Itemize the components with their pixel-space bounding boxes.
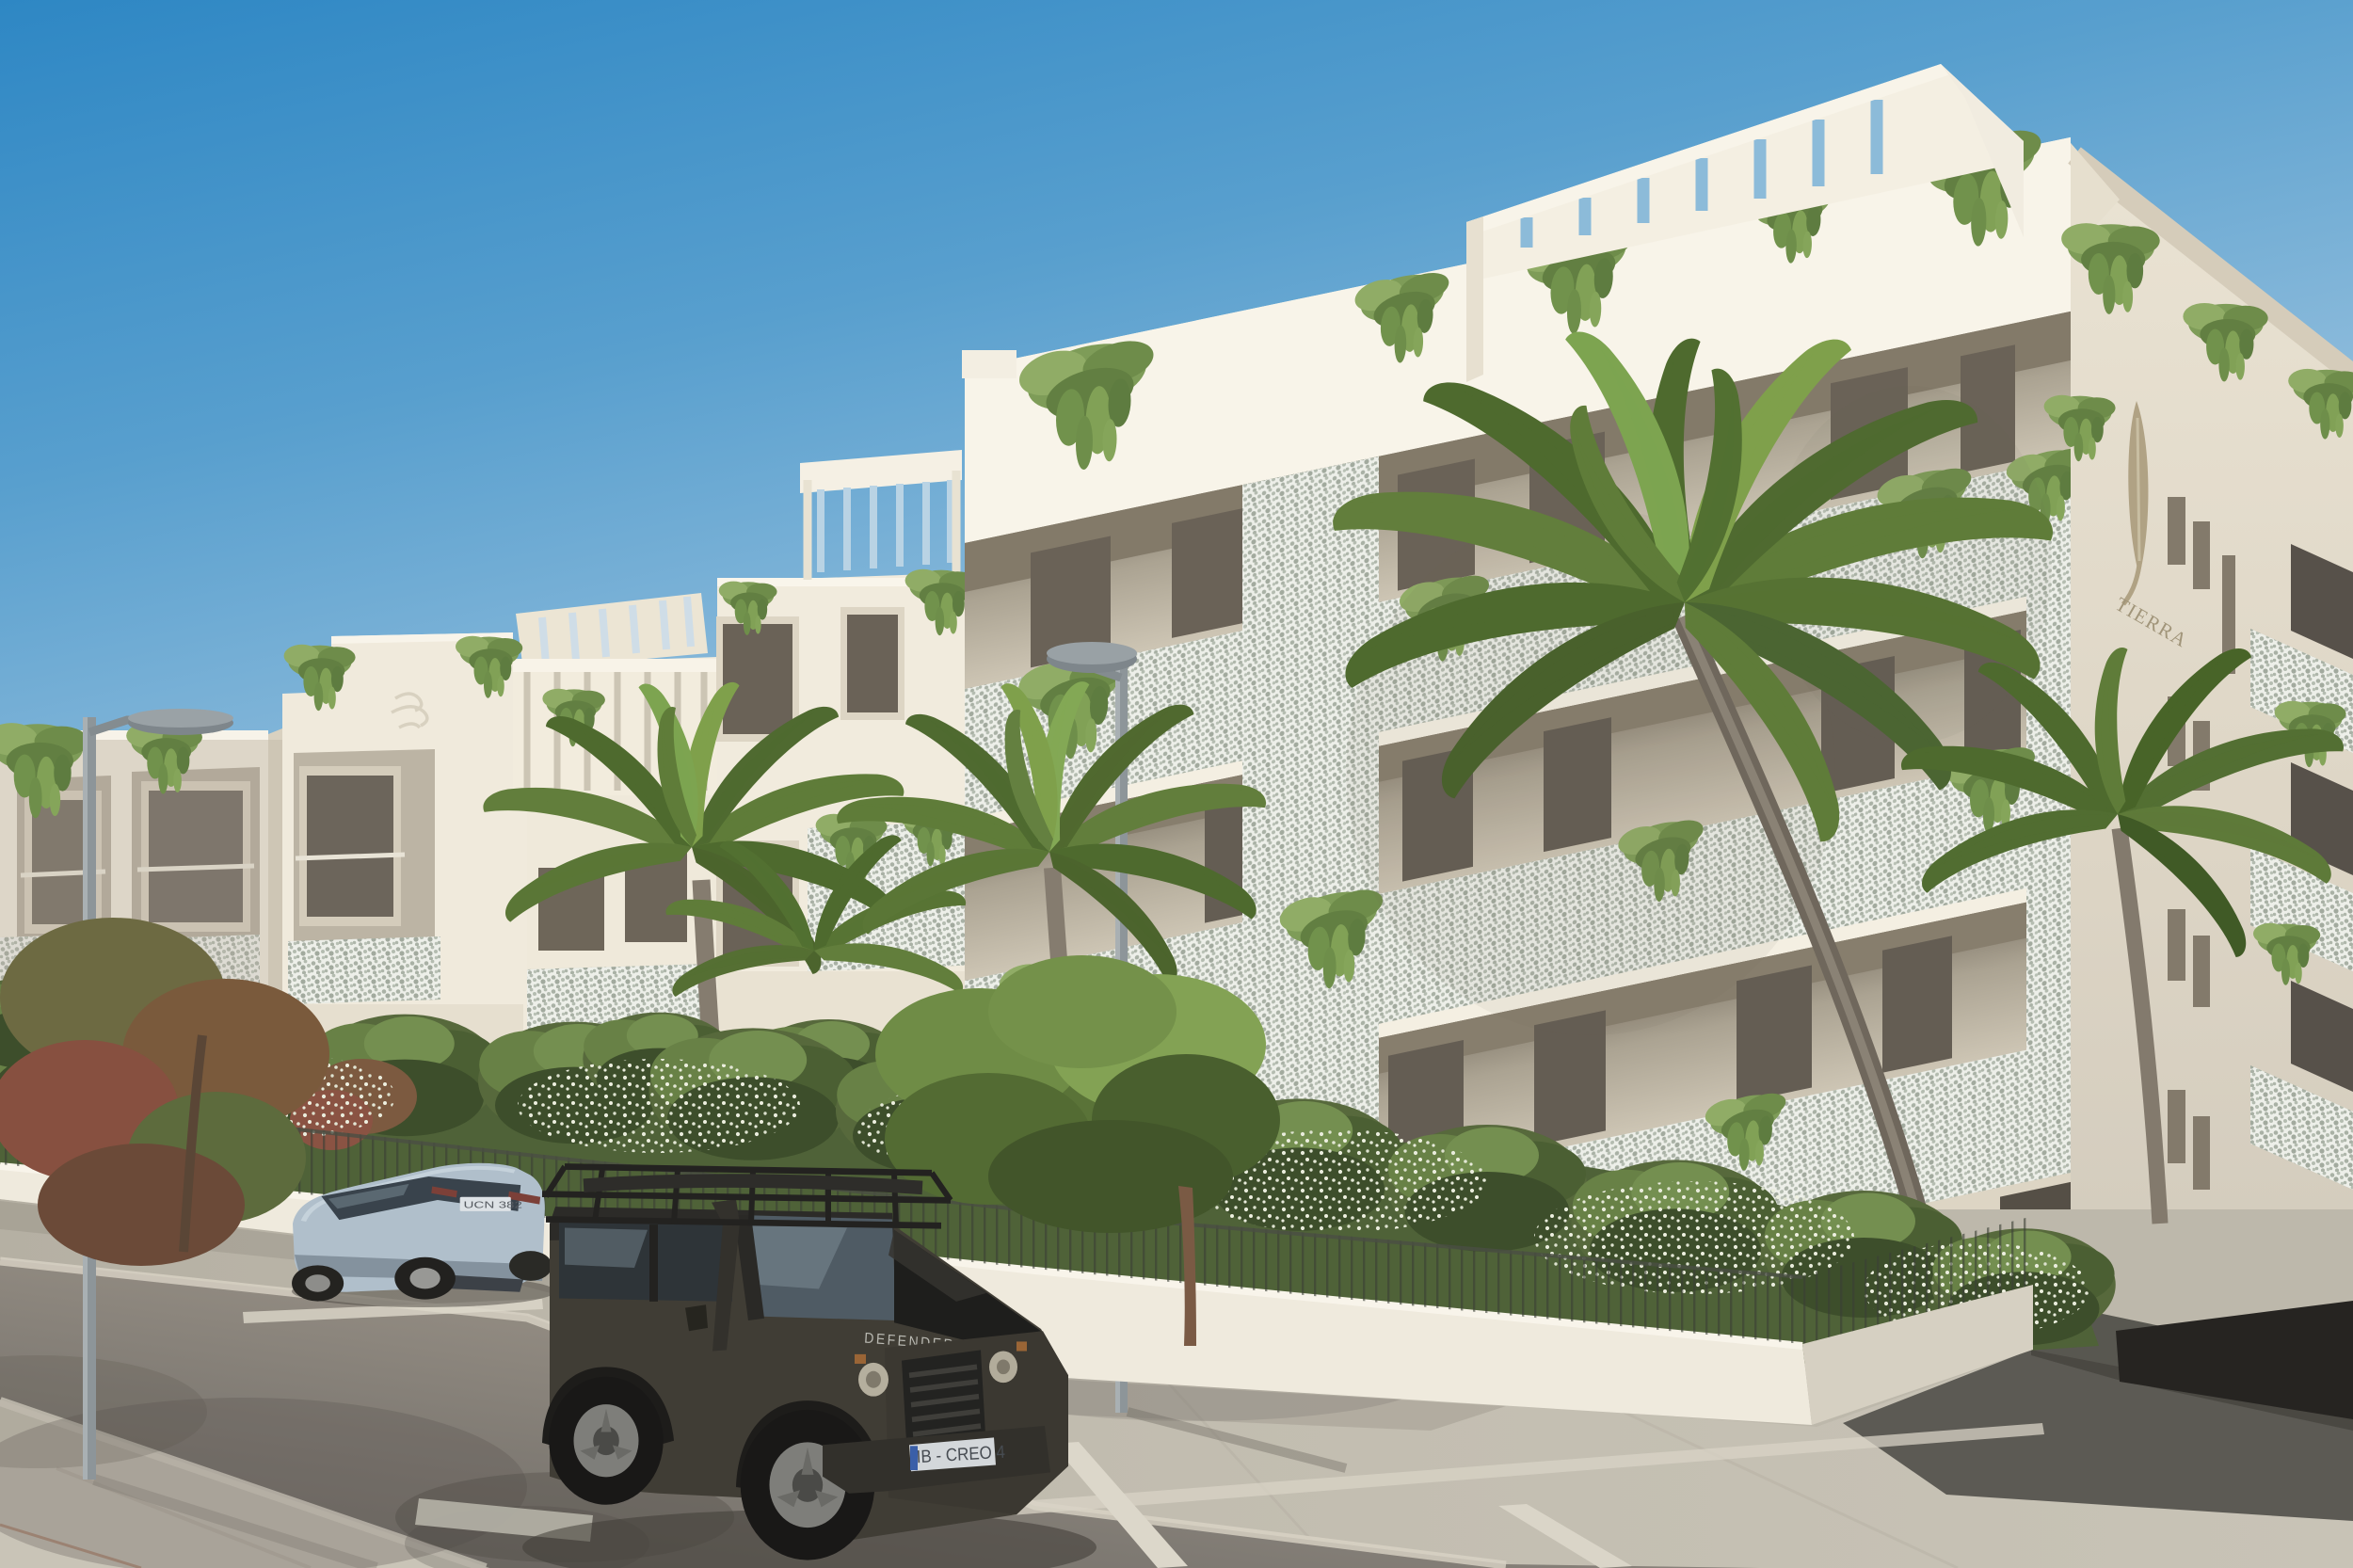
svg-text:UCN 382: UCN 382	[463, 1199, 521, 1210]
